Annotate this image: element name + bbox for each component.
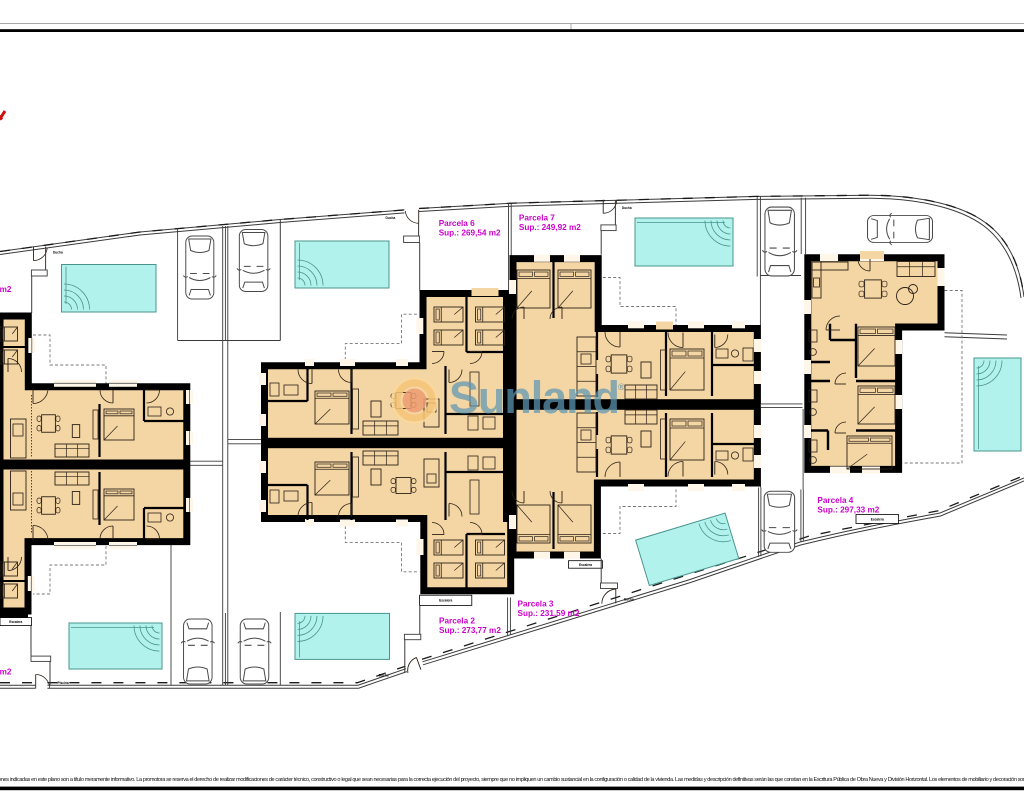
svg-text:Escalera: Escalera	[871, 517, 884, 521]
svg-text:Parcela 2: Parcela 2	[439, 617, 475, 626]
svg-text:Sup.: 231,59 m2: Sup.: 231,59 m2	[518, 609, 580, 618]
svg-text:®: ®	[618, 382, 625, 392]
svg-text:Sup.: 249,92 m2: Sup.: 249,92 m2	[519, 223, 581, 232]
svg-text:Ducha: Ducha	[624, 598, 634, 602]
svg-text:Sunland: Sunland	[449, 372, 620, 423]
svg-text:Escalera: Escalera	[9, 620, 22, 624]
svg-text:Escalera: Escalera	[579, 563, 592, 567]
svg-text:Parcela 3: Parcela 3	[518, 599, 554, 608]
svg-text:Parcela 6: Parcela 6	[439, 219, 475, 228]
svg-text:Sup.: 269,54 m2: Sup.: 269,54 m2	[439, 229, 501, 238]
svg-text:Piscina: Piscina	[58, 681, 69, 685]
svg-text:Escalera: Escalera	[439, 599, 452, 603]
svg-text:Parcela 4: Parcela 4	[817, 496, 853, 505]
svg-text:Ducha: Ducha	[386, 216, 396, 220]
svg-text:Ducha: Ducha	[379, 673, 389, 677]
svg-text:Ducha: Ducha	[53, 251, 63, 255]
svg-text:ones indicadas en este plano s: ones indicadas en este plano son a títul…	[0, 777, 1024, 783]
svg-text:Parcela 7: Parcela 7	[519, 214, 555, 223]
svg-text:Sup.: 273,77 m2: Sup.: 273,77 m2	[439, 626, 501, 635]
svg-text:Sup.: 297,33 m2: Sup.: 297,33 m2	[817, 506, 879, 515]
svg-text:m2: m2	[0, 285, 12, 294]
svg-text:m2: m2	[0, 668, 12, 677]
svg-text:Ducha: Ducha	[622, 206, 632, 210]
